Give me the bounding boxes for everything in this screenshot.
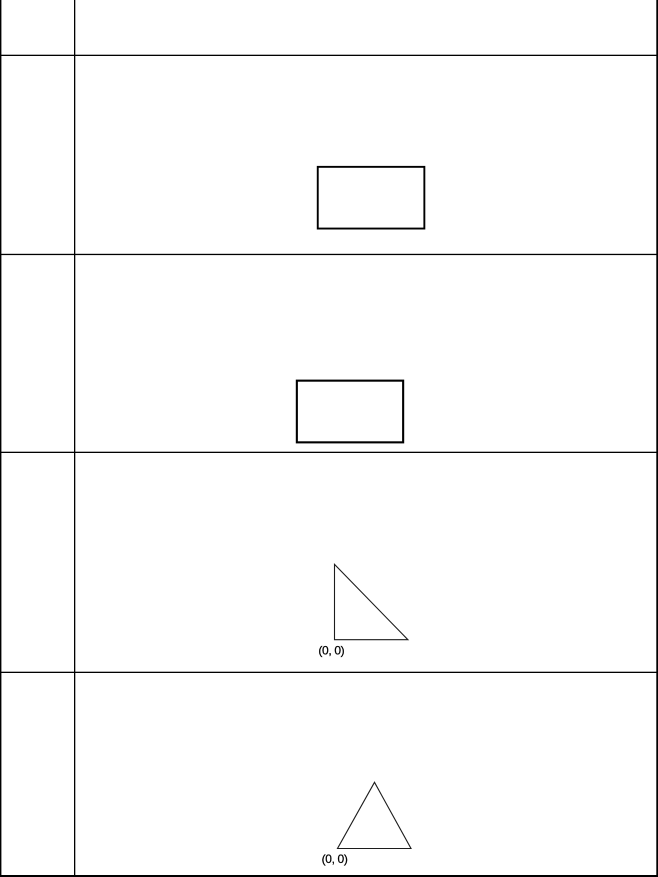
svg-text:(0, 0): (0, 0) [318, 644, 344, 658]
svg-text:(0, 0): (0, 0) [322, 852, 348, 866]
